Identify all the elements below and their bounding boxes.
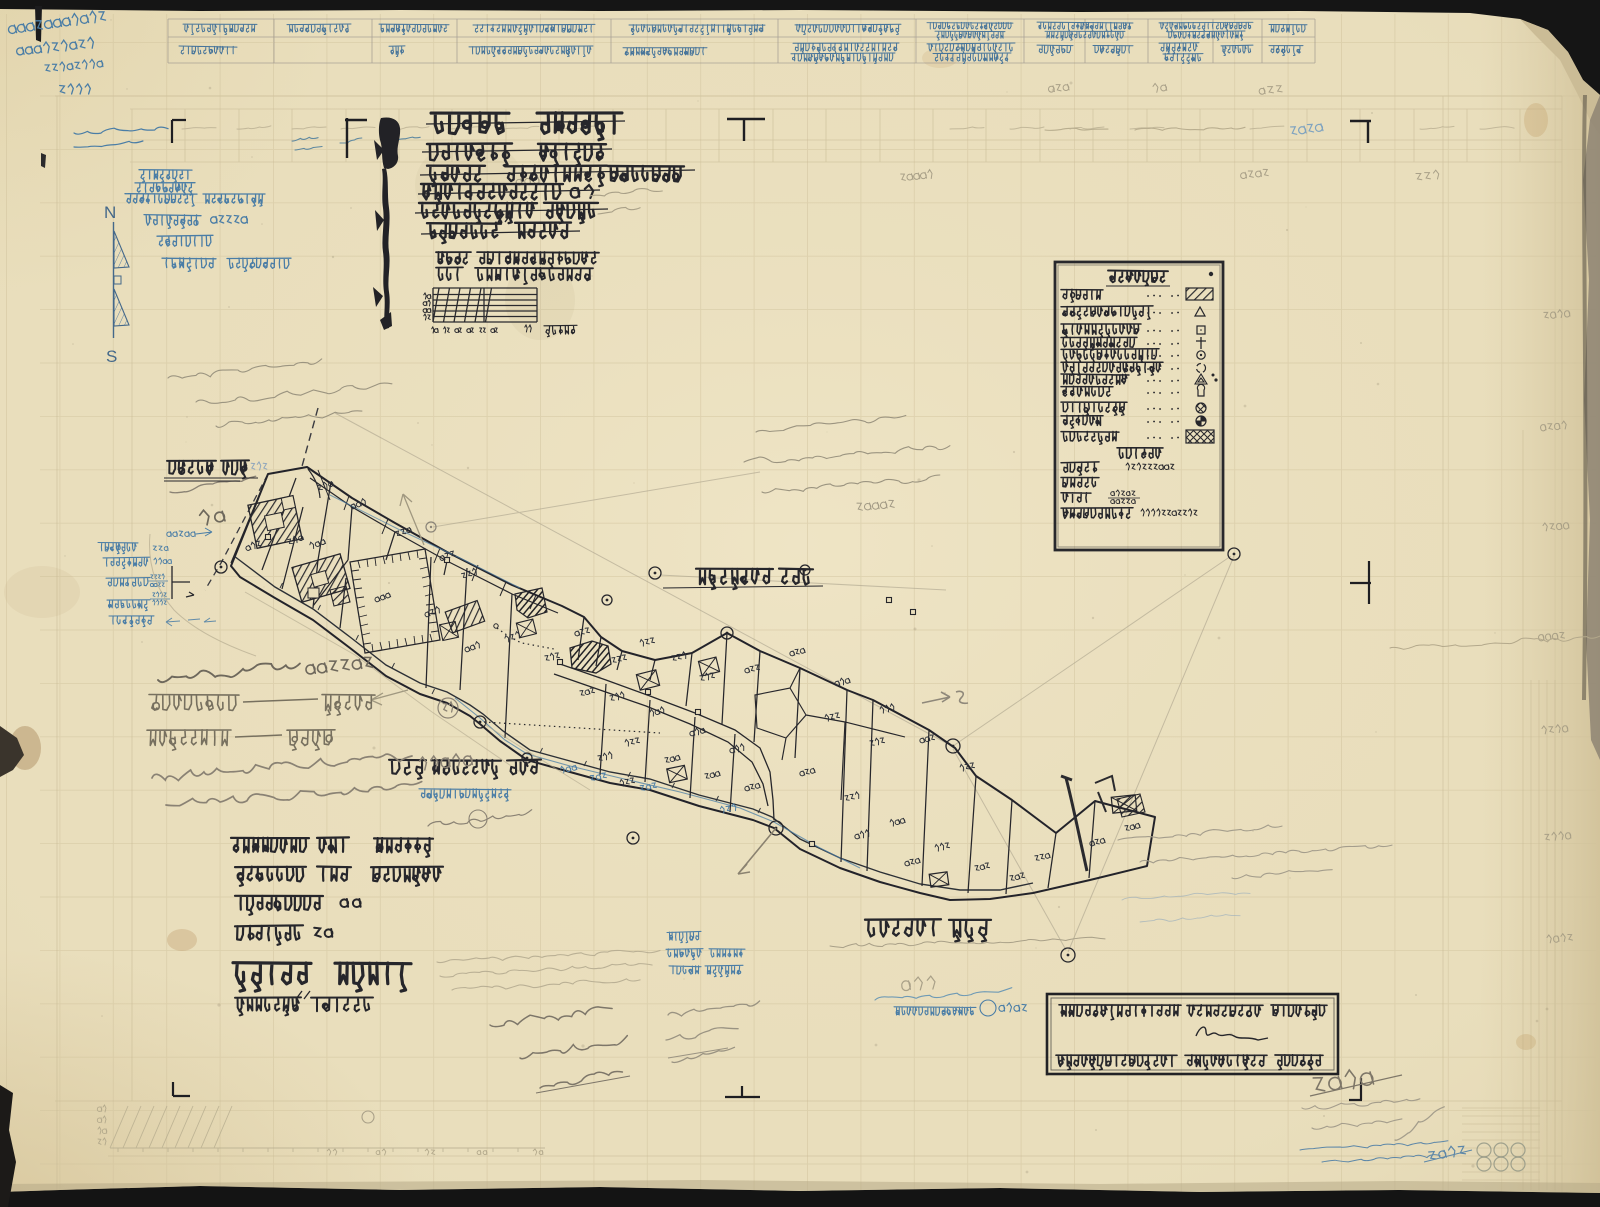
svg-text:N: N — [104, 203, 116, 222]
svg-text:S: S — [106, 347, 117, 366]
